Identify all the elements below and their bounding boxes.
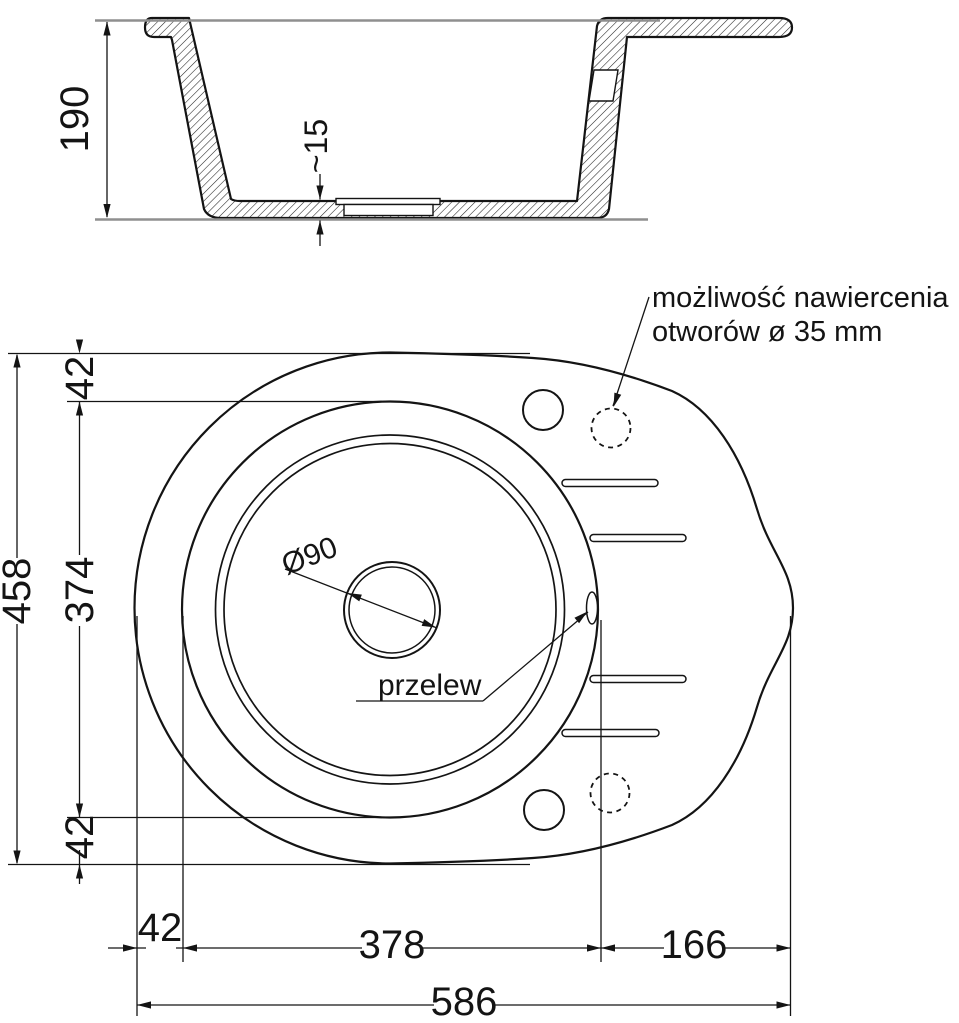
- dim-floor-thickness: ~15: [298, 119, 334, 246]
- drain-diameter-label: Ø90: [277, 531, 342, 582]
- dim-bowl-height: 374: [58, 402, 102, 818]
- bowl-width-label: 378: [359, 923, 426, 967]
- dim-bottom-offset: 42: [58, 815, 102, 884]
- drill-note-line1: możliwość nawiercenia: [652, 282, 949, 314]
- groove-3: [590, 676, 686, 683]
- drill-hole-option-top: [592, 409, 631, 448]
- drill-hole-option-bottom: [591, 774, 630, 813]
- section-overflow-gap: [589, 70, 618, 101]
- dim-top-offset: 42: [58, 340, 102, 401]
- left-offset-label: 42: [138, 906, 183, 950]
- plan-view: 458 42 374 42: [0, 282, 949, 1023]
- sink-outline: [135, 353, 794, 864]
- dim-drain-diameter: Ø90: [277, 531, 437, 631]
- dim-overall-width: 586: [137, 980, 791, 1023]
- drill-note-callout: możliwość nawiercenia otworów ø 35 mm: [610, 282, 949, 408]
- groove-4: [562, 730, 659, 737]
- section-view: 190 ~15: [53, 18, 792, 246]
- drill-note-line2: otworów ø 35 mm: [652, 316, 882, 348]
- overflow-hole: [587, 592, 598, 624]
- top-offset-label: 42: [58, 356, 102, 401]
- bottom-offset-label: 42: [58, 815, 102, 860]
- drain-recess-lip: [336, 199, 440, 205]
- dim-overall-height: 458: [0, 354, 39, 865]
- bowl-height-label: 374: [58, 557, 102, 624]
- drain-recess-slot: [344, 205, 433, 216]
- dim-section-height: 190: [53, 22, 111, 219]
- drainer-width-label: 166: [661, 923, 728, 967]
- groove-1: [562, 480, 658, 487]
- floor-thickness-label: ~15: [298, 119, 334, 173]
- overall-width-label: 586: [431, 980, 498, 1023]
- groove-2: [590, 535, 686, 542]
- overflow-label: przelew: [378, 669, 482, 702]
- technical-drawing: 190 ~15: [0, 0, 959, 1023]
- drainer-grooves: [562, 480, 686, 737]
- faucet-hole-bottom: [524, 790, 564, 830]
- section-sink-body: [145, 18, 792, 218]
- overall-height-label: 458: [0, 558, 39, 625]
- faucet-hole-top: [523, 390, 563, 430]
- section-height-label: 190: [53, 86, 97, 153]
- drawing-canvas: 190 ~15: [0, 0, 959, 1023]
